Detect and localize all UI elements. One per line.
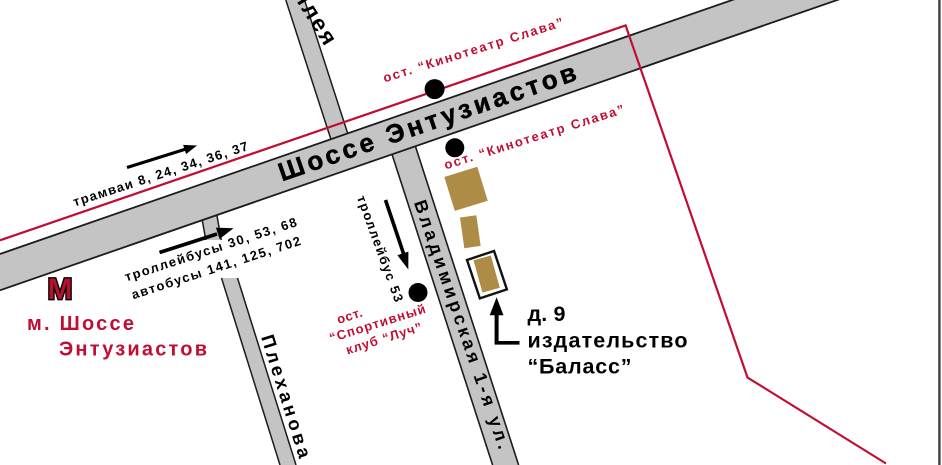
svg-text:издательство: издательство: [528, 329, 688, 353]
svg-text:М: М: [48, 273, 73, 306]
svg-text:Энтузиастов: Энтузиастов: [59, 339, 207, 361]
svg-text:д. 9: д. 9: [528, 302, 566, 326]
svg-text:“Баласс”: “Баласс”: [528, 355, 632, 379]
